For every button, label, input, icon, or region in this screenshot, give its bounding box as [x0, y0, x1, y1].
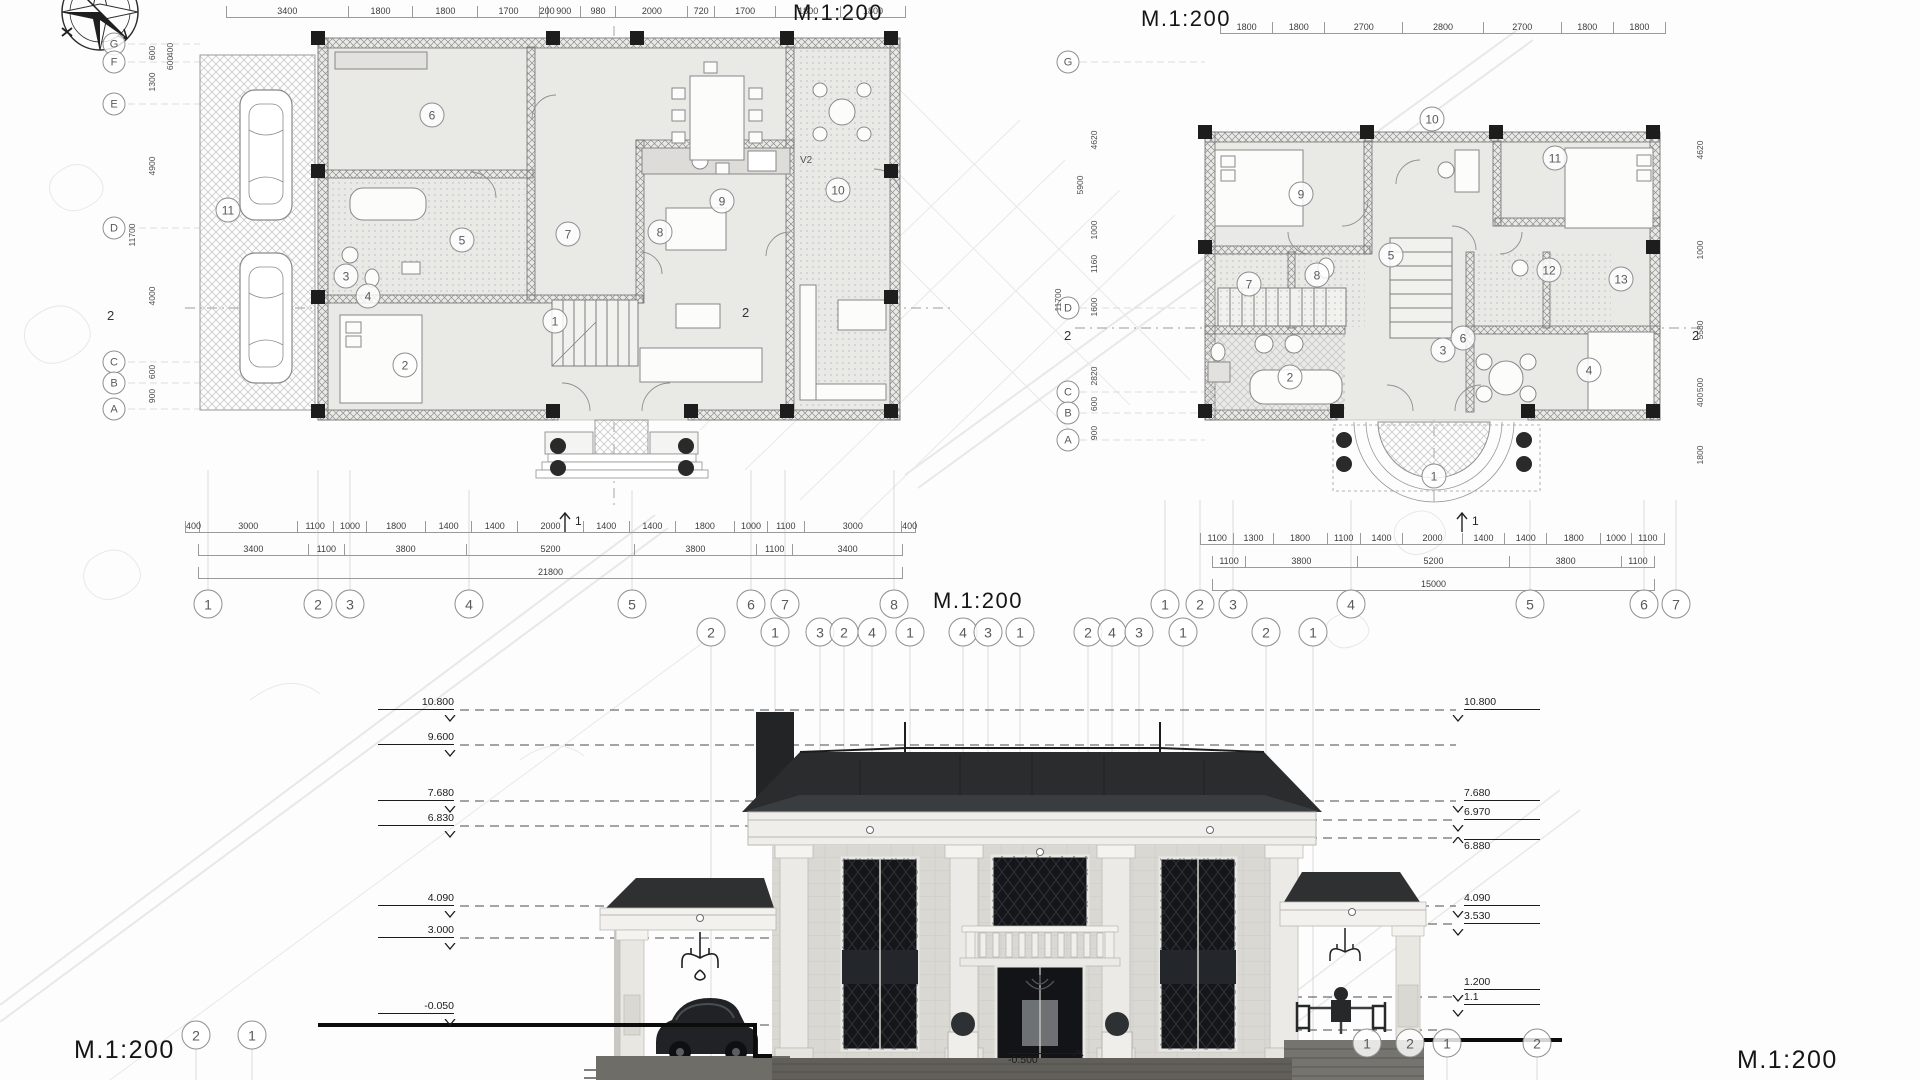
- level-marker: 4.090: [378, 892, 454, 906]
- dim-label: 1800: [1274, 533, 1328, 544]
- room-number-bubble: 4: [1577, 358, 1602, 383]
- elevation-axis-bubble: 4: [858, 618, 887, 647]
- level-arrow-icon: [444, 905, 456, 923]
- room-number-bubble: 1: [543, 309, 568, 334]
- plan2-total-dimension-row: 15000: [1212, 579, 1655, 591]
- grid-bubble-number: 3: [1219, 590, 1248, 619]
- dim-label: 1400: [630, 521, 676, 532]
- elevation-axis-bubble: 1: [238, 1021, 267, 1050]
- level-marker: 10.800: [378, 696, 454, 710]
- room-number-bubble: 8: [1305, 263, 1330, 288]
- dim-label: 400: [902, 521, 916, 532]
- section-marker: 1: [558, 510, 582, 532]
- room-number-bubble: 2: [1278, 365, 1303, 390]
- grid-bubble-number: 6: [1630, 590, 1659, 619]
- dim-label: 2800: [1403, 22, 1484, 33]
- dim-label: 3800: [635, 544, 758, 555]
- dim-label: 1800: [413, 6, 478, 17]
- dim-label: 21800: [199, 567, 903, 578]
- vent-label: V2: [800, 155, 812, 166]
- level-marker: 1.200: [1464, 976, 1540, 990]
- grid-bubble-number: 7: [1662, 590, 1691, 619]
- plan1-bottom-dimension-row2: 3400110038005200380011003400: [198, 544, 903, 556]
- dim-label: 3000: [805, 521, 903, 532]
- room-number-bubble: 8: [648, 220, 673, 245]
- plan1-bottom-dimension-row1: 4003000110010001800140014002000140014001…: [185, 521, 916, 533]
- dim-label: 2700: [1325, 22, 1403, 33]
- room-number-bubble: 12: [1537, 258, 1562, 283]
- elevation-axis-bubble: 1: [1353, 1029, 1382, 1058]
- level-marker: 7.680: [1464, 787, 1540, 801]
- room-number-bubble: 6: [1451, 326, 1476, 351]
- plan2-top-dimension-row: 1800180027002800270018001800: [1220, 22, 1666, 34]
- section-marker-label: 1: [1472, 514, 1479, 528]
- dim-label: 1400: [584, 521, 630, 532]
- dim-label: 1800: [1614, 22, 1666, 33]
- dim-label: 5200: [1358, 556, 1511, 567]
- dim-label: 1100: [757, 544, 793, 555]
- level-arrow-icon: [1452, 923, 1464, 941]
- room-number-bubble: 10: [1420, 107, 1445, 132]
- room-number-bubble: 9: [710, 189, 735, 214]
- level-marker: 9.600: [378, 731, 454, 745]
- dim-label: 2000: [616, 6, 688, 17]
- room-number-bubble: 6: [420, 103, 445, 128]
- grid-bubble-number: 5: [618, 590, 647, 619]
- dim-label: 1100: [768, 521, 804, 532]
- elevation-axis-bubble: 3: [974, 618, 1003, 647]
- elevation-axis-bubble: 1: [1006, 618, 1035, 647]
- level-arrow-icon: [1452, 709, 1464, 727]
- grid-bubble-letter: D: [103, 217, 126, 240]
- room-number-bubble: 5: [1379, 243, 1404, 268]
- grid-bubble-number: 2: [1186, 590, 1215, 619]
- vertical-dim-label: 1000: [1695, 241, 1705, 260]
- dim-label: 1100: [1632, 533, 1665, 544]
- level-marker: 6.880: [1464, 839, 1540, 853]
- room-number-bubble: 1: [1422, 464, 1447, 489]
- grid-bubble-letter: B: [103, 372, 126, 395]
- vertical-dim-label: 11700: [1053, 288, 1063, 311]
- level-marker: -0.050: [378, 1000, 454, 1014]
- grid-bubble-number: 8: [880, 590, 909, 619]
- dim-label: 1800: [1273, 22, 1325, 33]
- annotation-layer: 3400180018001700200900980200072017001800…: [0, 0, 1920, 1080]
- elevation-axis-bubble: 2: [1523, 1029, 1552, 1058]
- vertical-dim-label: 600: [147, 46, 157, 60]
- vertical-dim-label: 1600: [1089, 298, 1099, 317]
- dim-label: 1100: [1213, 556, 1246, 567]
- room-number-bubble: 3: [334, 264, 359, 289]
- elevation-axis-bubble: 2: [1396, 1029, 1425, 1058]
- room-number-bubble: 7: [556, 222, 581, 247]
- grid-bubble-letter: A: [1057, 429, 1080, 452]
- dim-label: 400: [186, 521, 200, 532]
- vertical-dim-label: 4620: [1695, 141, 1705, 160]
- dim-label: 3000: [200, 521, 298, 532]
- elevation-scale-label-center: M.1:200: [933, 588, 1023, 614]
- grid-bubble-number: 5: [1516, 590, 1545, 619]
- vertical-dim-label: 1160: [1089, 255, 1099, 273]
- dim-label: 1100: [1201, 533, 1234, 544]
- level-marker: 7.680: [378, 787, 454, 801]
- elevation-axis-bubble: 1: [1433, 1029, 1462, 1058]
- level-arrow-icon: [444, 937, 456, 955]
- elevation-axis-bubble: 2: [182, 1021, 211, 1050]
- plan2-bottom-dimension-row1: 1100130018001100140020001400140018001000…: [1200, 533, 1665, 545]
- plan2-bottom-dimension-row2: 11003800520038001100: [1212, 556, 1655, 568]
- vertical-dim-label: 2820: [1089, 367, 1099, 386]
- grid-bubble-number: 4: [1337, 590, 1366, 619]
- dim-label: 1700: [478, 6, 539, 17]
- dim-label: 1400: [1463, 533, 1505, 544]
- dim-label: 1400: [1505, 533, 1547, 544]
- dim-label: 3400: [793, 544, 903, 555]
- dim-label: 3800: [1246, 556, 1358, 567]
- level-arrow-icon: [444, 825, 456, 843]
- level-marker: 4.090: [1464, 892, 1540, 906]
- vertical-dim-label: 4620: [1089, 131, 1099, 150]
- dim-label: 5200: [467, 544, 634, 555]
- room-number-bubble: 7: [1237, 272, 1262, 297]
- dim-label: 2700: [1484, 22, 1562, 33]
- elevation-axis-bubble: 3: [1125, 618, 1154, 647]
- dim-label: 1400: [1361, 533, 1403, 544]
- elevation-axis-bubble: 1: [1299, 618, 1328, 647]
- room-number-bubble: 10: [826, 178, 851, 203]
- grid-bubble-letter: F: [103, 51, 126, 74]
- vertical-dim-label: 4000: [147, 287, 157, 306]
- plan1-scale-label: M.1:200: [793, 0, 883, 26]
- vertical-dim-label: 1000: [1089, 221, 1099, 240]
- dim-label: 1700: [715, 6, 776, 17]
- elevation-axis-bubble: 2: [697, 618, 726, 647]
- level-arrow-icon: [444, 709, 456, 727]
- vertical-dim-label: 1800: [1695, 446, 1705, 465]
- elevation-axis-bubble: 1: [761, 618, 790, 647]
- vertical-dim-label: 4900: [147, 157, 157, 176]
- vertical-dim-label: 600: [147, 365, 157, 379]
- dim-label: 1300: [1234, 533, 1273, 544]
- section-marker-side: 2: [1064, 328, 1071, 343]
- dim-label: 1100: [1328, 533, 1361, 544]
- level-arrow-icon: [444, 744, 456, 762]
- level-marker: 6.970: [1464, 806, 1540, 820]
- dim-label: 1800: [1562, 22, 1614, 33]
- level-arrow-icon: [1452, 800, 1464, 818]
- dim-label: 2000: [1403, 533, 1463, 544]
- dim-label: 1000: [1601, 533, 1631, 544]
- section-marker-side: 2: [1692, 328, 1699, 343]
- grid-bubble-number: 2: [304, 590, 333, 619]
- elevation-axis-bubble: 2: [830, 618, 859, 647]
- vertical-dim-label: 900: [1089, 426, 1099, 440]
- elevation-axis-bubble: 1: [1169, 618, 1198, 647]
- dim-label: 1400: [472, 521, 518, 532]
- vertical-dim-label: 400: [1695, 393, 1705, 407]
- room-number-bubble: 11: [216, 198, 241, 223]
- level-marker: 1.1: [1464, 991, 1540, 1005]
- grid-bubble-number: 3: [336, 590, 365, 619]
- level-arrow-icon: [1072, 1044, 1084, 1062]
- dim-label: 1800: [1547, 533, 1601, 544]
- vertical-dim-label: 500: [1695, 378, 1705, 392]
- elevation-axis-bubble: 2: [1252, 618, 1281, 647]
- room-number-bubble: 9: [1289, 182, 1314, 207]
- section-marker-label: 1: [575, 514, 582, 528]
- dim-label: 1100: [1622, 556, 1655, 567]
- section-marker-side: 2: [742, 305, 749, 320]
- level-arrow-icon: [444, 1013, 456, 1031]
- dim-label: 1400: [426, 521, 472, 532]
- dim-label: 1100: [298, 521, 334, 532]
- level-arrow-icon: [1452, 905, 1464, 923]
- vertical-dim-label: 900: [147, 389, 157, 403]
- room-number-bubble: 11: [1543, 146, 1568, 171]
- vertical-dim-label: 600: [1089, 397, 1099, 411]
- level-arrow-icon: [1452, 1004, 1464, 1022]
- level-marker: 3.000: [378, 924, 454, 938]
- dim-label: 1000: [334, 521, 367, 532]
- room-number-bubble: 5: [450, 228, 475, 253]
- dim-label: 1000: [735, 521, 768, 532]
- section-marker-side: 2: [107, 308, 114, 323]
- plan1-total-dimension-row: 21800: [198, 567, 903, 579]
- dim-label: 3800: [345, 544, 468, 555]
- blueprint-sheet: 3400180018001700200900980200072017001800…: [0, 0, 1920, 1080]
- vertical-dim-label: 11700: [127, 223, 137, 246]
- plan2-scale-label: M.1:200: [1141, 6, 1231, 32]
- level-marker: 3.530: [1464, 910, 1540, 924]
- dim-label: 1800: [676, 521, 735, 532]
- grid-bubble-letter: G: [1057, 51, 1080, 74]
- level-marker: -0.500: [1008, 1053, 1080, 1067]
- level-marker: 6.830: [378, 812, 454, 826]
- dim-label: 980: [581, 6, 617, 17]
- dim-label: 3400: [199, 544, 309, 555]
- grid-bubble-letter: C: [1057, 381, 1080, 404]
- grid-bubble-letter: E: [103, 93, 126, 116]
- room-number-bubble: 13: [1609, 267, 1634, 292]
- dim-label: 3400: [227, 6, 349, 17]
- grid-bubble-letter: A: [103, 398, 126, 421]
- grid-bubble-number: 4: [455, 590, 484, 619]
- dim-label: 720: [688, 6, 715, 17]
- vertical-dim-label: 5900: [1075, 176, 1085, 195]
- grid-bubble-letter: B: [1057, 402, 1080, 425]
- elevation-scale-label-right: M.1:200: [1737, 1046, 1838, 1075]
- dim-label: 15000: [1213, 579, 1655, 590]
- elevation-axis-bubble: 1: [896, 618, 925, 647]
- section-marker: 1: [1455, 510, 1479, 532]
- grid-bubble-number: 1: [1151, 590, 1180, 619]
- dim-label: 1800: [349, 6, 414, 17]
- vertical-dim-label: 1300: [147, 73, 157, 92]
- elevation-axis-bubble: 4: [1098, 618, 1127, 647]
- dim-label: 200: [540, 6, 548, 17]
- room-number-bubble: 4: [356, 284, 381, 309]
- dim-label: 900: [548, 6, 581, 17]
- vertical-dim-label: 600: [165, 56, 175, 70]
- grid-bubble-letter: C: [103, 351, 126, 374]
- level-marker: 10.800: [1464, 696, 1540, 710]
- grid-bubble-number: 1: [194, 590, 223, 619]
- elevation-scale-label-left: M.1:200: [74, 1036, 175, 1065]
- level-arrow-icon: [1452, 831, 1464, 849]
- grid-bubble-number: 7: [771, 590, 800, 619]
- dim-label: 1800: [367, 521, 426, 532]
- grid-bubble-number: 6: [737, 590, 766, 619]
- room-number-bubble: 2: [393, 353, 418, 378]
- dim-label: 3800: [1510, 556, 1622, 567]
- dim-label: 1100: [309, 544, 345, 555]
